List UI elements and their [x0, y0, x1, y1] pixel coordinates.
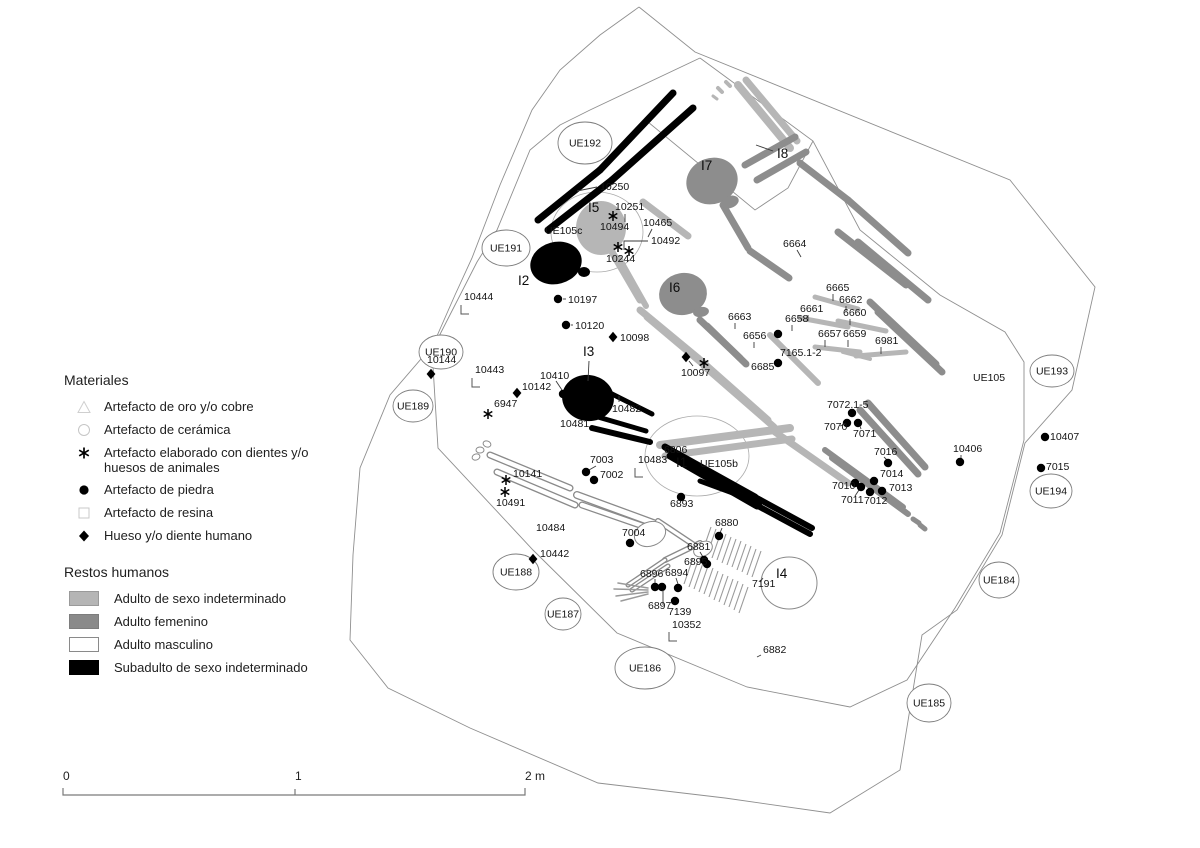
bone: [858, 242, 928, 300]
legend-remains-title: Restos humanos: [64, 564, 344, 580]
stone-artifact-dot: [658, 583, 666, 591]
corner-mark: [461, 305, 469, 314]
find-label-10483: 10483: [638, 454, 667, 466]
find-label-10352: 10352: [672, 619, 701, 631]
bone: [726, 82, 730, 86]
bone: [815, 347, 860, 352]
ue-unit-label-UE185: UE185: [913, 698, 945, 710]
remains-swatch: [69, 591, 99, 606]
find-label-7191: 7191: [752, 578, 776, 590]
material-label: Artefacto de piedra: [104, 482, 214, 497]
stone-artifact-dot: [774, 330, 782, 338]
individual-label-I7: I7: [701, 158, 712, 173]
legend-item-material: Artefacto de piedra: [64, 482, 344, 498]
stone-artifact-dot: [1041, 433, 1049, 441]
material-label: Artefacto elaborado con dientes y/o hues…: [104, 445, 344, 475]
find-label-10244: 10244: [606, 253, 635, 265]
find-label-6685: 6685: [751, 361, 775, 373]
material-label: Artefacto de cerámica: [104, 422, 230, 437]
find-label-10484: 10484: [536, 522, 565, 534]
find-label-6658: 6658: [785, 313, 809, 325]
find-label-6896: 6896: [640, 568, 664, 580]
find-label-7002: 7002: [600, 469, 624, 481]
find-label-6880: 6880: [715, 517, 739, 529]
leader-line: [556, 381, 562, 390]
find-label-6893: 6893: [670, 498, 694, 510]
area-label-UE105c: UE105c: [545, 225, 582, 237]
human-bone-diamond: [513, 388, 522, 398]
material-symbol: [64, 505, 104, 521]
circle-outline-icon: [76, 422, 92, 438]
stone-artifact-dot: [582, 468, 590, 476]
find-label-10492: 10492: [651, 235, 680, 247]
leader-line: [757, 655, 761, 657]
stone-artifact-dot: [590, 476, 598, 484]
ue-unit-label-UE193: UE193: [1036, 366, 1068, 378]
find-label-6664: 6664: [783, 238, 807, 250]
stone-artifact-dot: [715, 532, 723, 540]
material-label: Artefacto de resina: [104, 505, 213, 520]
rib-line: [727, 539, 736, 565]
skull-I2: [525, 236, 586, 290]
stone-artifact-dot: [870, 477, 878, 485]
material-label: Artefacto de oro y/o cobre: [104, 399, 254, 414]
material-label: Hueso y/o diente humano: [104, 528, 252, 543]
remains-label: Adulto masculino: [114, 637, 213, 652]
find-label-10482: 10482: [612, 403, 641, 415]
individual-label-I1: I1: [676, 455, 687, 470]
stone-artifact-dot: [854, 419, 862, 427]
leader-line: [589, 466, 596, 470]
scale-label-2 m: 2 m: [525, 769, 545, 783]
ue-unit-label-UE189: UE189: [397, 401, 429, 413]
stone-artifact-dot: [626, 539, 634, 547]
find-label-7016: 7016: [874, 446, 898, 458]
remains-label: Adulto femenino: [114, 614, 208, 629]
legend-item-material: Artefacto de cerámica: [64, 422, 344, 438]
legend-item-material: Artefacto de oro y/o cobre: [64, 399, 344, 415]
individual-label-I4: I4: [776, 566, 788, 581]
stone-artifact-dot: [559, 390, 567, 398]
stone-artifact-dot: [956, 458, 964, 466]
find-label-10197: 10197: [568, 294, 597, 306]
find-label-6657: 6657: [818, 328, 842, 340]
bone: [723, 205, 748, 248]
find-label-6663: 6663: [728, 311, 752, 323]
legend-remains-list: Adulto de sexo indeterminadoAdulto femen…: [64, 591, 344, 675]
legend-item-material: Hueso y/o diente humano: [64, 528, 344, 544]
find-label-10442: 10442: [540, 548, 569, 560]
find-label-10465: 10465: [643, 217, 672, 229]
legend-item-remains: Adulto femenino: [64, 614, 344, 629]
ue-unit-label-UE184: UE184: [983, 575, 1015, 587]
find-label-10142: 10142: [522, 381, 551, 393]
find-label-10406: 10406: [953, 443, 982, 455]
find-label-6981: 6981: [875, 335, 899, 347]
find-label-7139: 7139: [668, 606, 692, 618]
legend-item-remains: Adulto masculino: [64, 637, 344, 652]
individual-label-I3: I3: [583, 344, 594, 359]
find-label-7071: 7071: [853, 428, 877, 440]
bone: [713, 96, 717, 99]
find-label-6947: 6947: [494, 398, 518, 410]
stone-artifact-dot: [671, 597, 679, 605]
diamond-icon: [76, 528, 92, 544]
bone: [750, 251, 789, 278]
find-label-6662: 6662: [839, 294, 863, 306]
find-label-10494: 10494: [600, 221, 629, 233]
find-label-10097: 10097: [681, 367, 710, 379]
stone-artifact-dot: [554, 295, 562, 303]
stone-artifact-dot: [878, 487, 886, 495]
bone: [738, 85, 790, 148]
find-label-7072.1-5: 7072.1-5: [827, 399, 869, 411]
find-label-10141: 10141: [513, 468, 542, 480]
stone-artifact-dot: [1037, 464, 1045, 472]
site-plan-figure: UE192UE191UE190UE189UE188UE187UE186UE185…: [0, 0, 1200, 848]
find-label-10481: 10481: [560, 418, 589, 430]
find-label-10410: 10410: [540, 370, 569, 382]
find-label-10098: 10098: [620, 332, 649, 344]
find-label-6660: 6660: [843, 307, 867, 319]
stone-artifact-dot: [884, 459, 892, 467]
find-label-7165.1-2: 7165.1-2: [780, 347, 822, 359]
stone-artifact-dot: [562, 321, 570, 329]
bone: [755, 497, 812, 528]
remains-label: Subadulto de sexo indeterminado: [114, 660, 308, 675]
asterisk-icon: [76, 445, 92, 461]
ue-unit-label-UE194: UE194: [1035, 486, 1067, 498]
legend-item-material: Artefacto elaborado con dientes y/o hues…: [64, 445, 344, 475]
material-symbol: [64, 399, 104, 415]
remains-swatch: [69, 660, 99, 675]
leader-line: [689, 361, 693, 366]
find-label-7070: 7070: [824, 421, 848, 433]
scale-label-0: 0: [63, 769, 70, 783]
material-symbol: [64, 422, 104, 438]
legend: Materiales Artefacto de oro y/o cobreArt…: [64, 372, 344, 683]
find-label-7010: 7010: [832, 480, 856, 492]
find-label-6656: 6656: [743, 330, 767, 342]
area-label-UE105b: UE105b: [700, 458, 738, 470]
remains-swatch: [69, 614, 99, 629]
rib-line: [752, 551, 761, 577]
ue-unit-label-UE191: UE191: [490, 243, 522, 255]
find-label-7011: 7011: [841, 494, 864, 506]
boundary-outer: [350, 7, 1095, 813]
square-outline-icon: [76, 505, 92, 521]
legend-item-remains: Subadulto de sexo indeterminado: [64, 660, 344, 675]
remains-label: Adulto de sexo indeterminado: [114, 591, 286, 606]
find-label-6659: 6659: [843, 328, 867, 340]
find-label-10120: 10120: [575, 320, 604, 332]
find-label-10144: 10144: [427, 354, 456, 366]
find-label-6665: 6665: [826, 282, 850, 294]
stone-artifact-dot: [857, 483, 865, 491]
human-bone-diamond: [609, 332, 618, 342]
corner-mark: [635, 468, 643, 477]
remains-swatch: [69, 637, 99, 652]
triangle-outline-icon: [76, 399, 92, 415]
find-label-6881: 6881: [687, 541, 711, 553]
leader-line: [624, 241, 648, 250]
find-label-10444: 10444: [464, 291, 493, 303]
find-label-7013: 7013: [889, 482, 913, 494]
find-label-10407: 10407: [1050, 431, 1079, 443]
find-label-10251: 10251: [615, 201, 644, 213]
bone: [718, 88, 722, 92]
individual-label-I2: I2: [518, 273, 529, 288]
corner-mark: [472, 378, 480, 387]
find-label-7015: 7015: [1046, 461, 1070, 473]
find-label-6882: 6882: [763, 644, 787, 656]
material-symbol: [64, 528, 104, 544]
finger-bone: [614, 589, 648, 590]
area-label-UE105: UE105: [973, 372, 1005, 384]
corner-mark: [669, 632, 677, 641]
dot-icon: [76, 482, 92, 498]
find-label-10250: 10250: [600, 181, 629, 193]
find-label-6894: 6894: [665, 567, 689, 579]
material-symbol: [64, 445, 104, 461]
bone: [619, 258, 646, 306]
bone: [707, 326, 746, 364]
material-symbol: [64, 482, 104, 498]
foot-bone: [476, 447, 484, 453]
scale-label-1: 1: [295, 769, 302, 783]
find-label-10443: 10443: [475, 364, 504, 376]
find-label-7014: 7014: [880, 468, 904, 480]
stone-artifact-dot: [774, 359, 782, 367]
ue-unit-label-UE187: UE187: [547, 609, 579, 621]
legend-materials-title: Materiales: [64, 372, 344, 388]
find-label-10491: 10491: [496, 497, 525, 509]
bone: [800, 163, 848, 200]
bone-fragment: [578, 267, 590, 277]
bone: [920, 525, 925, 529]
ue-unit-label-UE188: UE188: [500, 567, 532, 579]
legend-item-material: Artefacto de resina: [64, 505, 344, 521]
foot-bone: [471, 453, 481, 461]
legend-materials-list: Artefacto de oro y/o cobreArtefacto de c…: [64, 399, 344, 544]
foot-bone: [482, 440, 492, 448]
individual-label-I6: I6: [669, 280, 680, 295]
individual-label-I8: I8: [777, 146, 788, 161]
ue-unit-label-UE192: UE192: [569, 138, 601, 150]
find-label-7012: 7012: [864, 495, 888, 507]
individual-label-I5: I5: [588, 200, 599, 215]
stone-artifact-dot: [674, 584, 682, 592]
scale-bar: [63, 788, 525, 795]
find-label-7004: 7004: [622, 527, 646, 539]
leader-line: [797, 250, 801, 257]
bone: [913, 519, 919, 523]
find-label-7003: 7003: [590, 454, 614, 466]
ue-unit-label-UE186: UE186: [629, 663, 661, 675]
legend-item-remains: Adulto de sexo indeterminado: [64, 591, 344, 606]
